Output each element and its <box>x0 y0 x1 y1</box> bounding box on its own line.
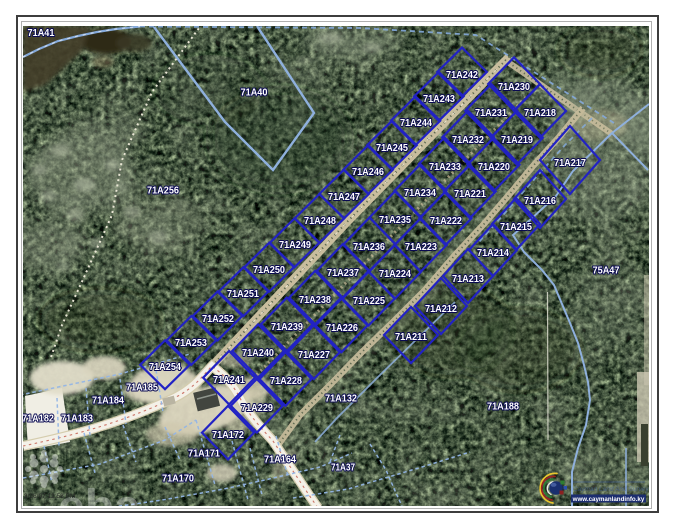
svg-text:71A183: 71A183 <box>61 414 93 425</box>
svg-text:71A184: 71A184 <box>92 396 124 407</box>
svg-text:71A252: 71A252 <box>202 314 234 325</box>
svg-text:71A230: 71A230 <box>498 82 530 93</box>
svg-text:71A233: 71A233 <box>429 162 461 173</box>
svg-text:71A218: 71A218 <box>524 108 556 119</box>
svg-text:71A216: 71A216 <box>524 196 556 207</box>
svg-text:71A236: 71A236 <box>353 242 385 253</box>
svg-text:Cayman Land And Survey: Cayman Land And Survey <box>573 486 649 493</box>
svg-text:71A251: 71A251 <box>227 289 259 300</box>
svg-text:75A47: 75A47 <box>593 266 620 277</box>
svg-text:71A244: 71A244 <box>400 118 432 129</box>
svg-text:71A242: 71A242 <box>446 70 478 81</box>
svg-text:71A245: 71A245 <box>376 143 408 154</box>
svg-text:71A37: 71A37 <box>331 463 355 474</box>
svg-text:71A227: 71A227 <box>298 350 330 361</box>
svg-text:71A222: 71A222 <box>430 216 462 227</box>
svg-text:71A220: 71A220 <box>478 162 510 173</box>
svg-text:71A188: 71A188 <box>487 402 519 413</box>
svg-text:71A212: 71A212 <box>425 304 457 315</box>
svg-text:71A41: 71A41 <box>28 28 55 39</box>
svg-text:71A224: 71A224 <box>379 269 411 280</box>
svg-text:71A246: 71A246 <box>352 167 384 178</box>
svg-text:71A239: 71A239 <box>271 322 303 333</box>
svg-text:71A221: 71A221 <box>454 189 486 200</box>
svg-text:71A247: 71A247 <box>328 192 360 203</box>
svg-text:71A213: 71A213 <box>452 274 484 285</box>
svg-text:71A243: 71A243 <box>423 94 455 105</box>
svg-text:71A226: 71A226 <box>326 323 358 334</box>
svg-text:71A171: 71A171 <box>188 449 220 460</box>
svg-text:71A185: 71A185 <box>126 383 158 394</box>
svg-text:71A249: 71A249 <box>279 240 311 251</box>
svg-text:71A172: 71A172 <box>212 430 244 441</box>
svg-text:71A211: 71A211 <box>395 332 427 343</box>
svg-text:71A232: 71A232 <box>452 135 484 146</box>
svg-text:71A237: 71A237 <box>327 268 359 279</box>
svg-text:71A132: 71A132 <box>325 394 357 405</box>
svg-text:71A235: 71A235 <box>379 215 411 226</box>
svg-text:71A225: 71A225 <box>353 296 385 307</box>
svg-text:71A254: 71A254 <box>149 362 181 373</box>
svg-text:71A217: 71A217 <box>554 158 586 169</box>
svg-text:71A256: 71A256 <box>147 186 179 197</box>
svg-text:71A228: 71A228 <box>270 376 302 387</box>
svg-text:71A219: 71A219 <box>501 135 533 146</box>
svg-text:71A253: 71A253 <box>175 338 207 349</box>
svg-text:71A182: 71A182 <box>23 414 54 425</box>
svg-text:71A215: 71A215 <box>500 222 532 233</box>
svg-text:71A238: 71A238 <box>299 295 331 306</box>
svg-text:71A170: 71A170 <box>162 474 194 485</box>
svg-text:71A250: 71A250 <box>253 265 285 276</box>
svg-text:71A164: 71A164 <box>264 455 296 466</box>
svg-text:71A241: 71A241 <box>213 375 245 386</box>
svg-text:www.caymanlandinfo.ky: www.caymanlandinfo.ky <box>572 496 645 503</box>
svg-text:71A231: 71A231 <box>475 108 507 119</box>
svg-text:71A214: 71A214 <box>477 248 509 259</box>
svg-text:71A240: 71A240 <box>242 348 274 359</box>
svg-text:71A229: 71A229 <box>241 403 273 414</box>
svg-text:71A40: 71A40 <box>241 88 268 99</box>
svg-text:3/26/07 12:58 PM: 3/26/07 12:58 PM <box>24 493 75 500</box>
svg-text:71A223: 71A223 <box>405 242 437 253</box>
svg-text:71A234: 71A234 <box>404 188 436 199</box>
svg-text:71A248: 71A248 <box>304 216 336 227</box>
